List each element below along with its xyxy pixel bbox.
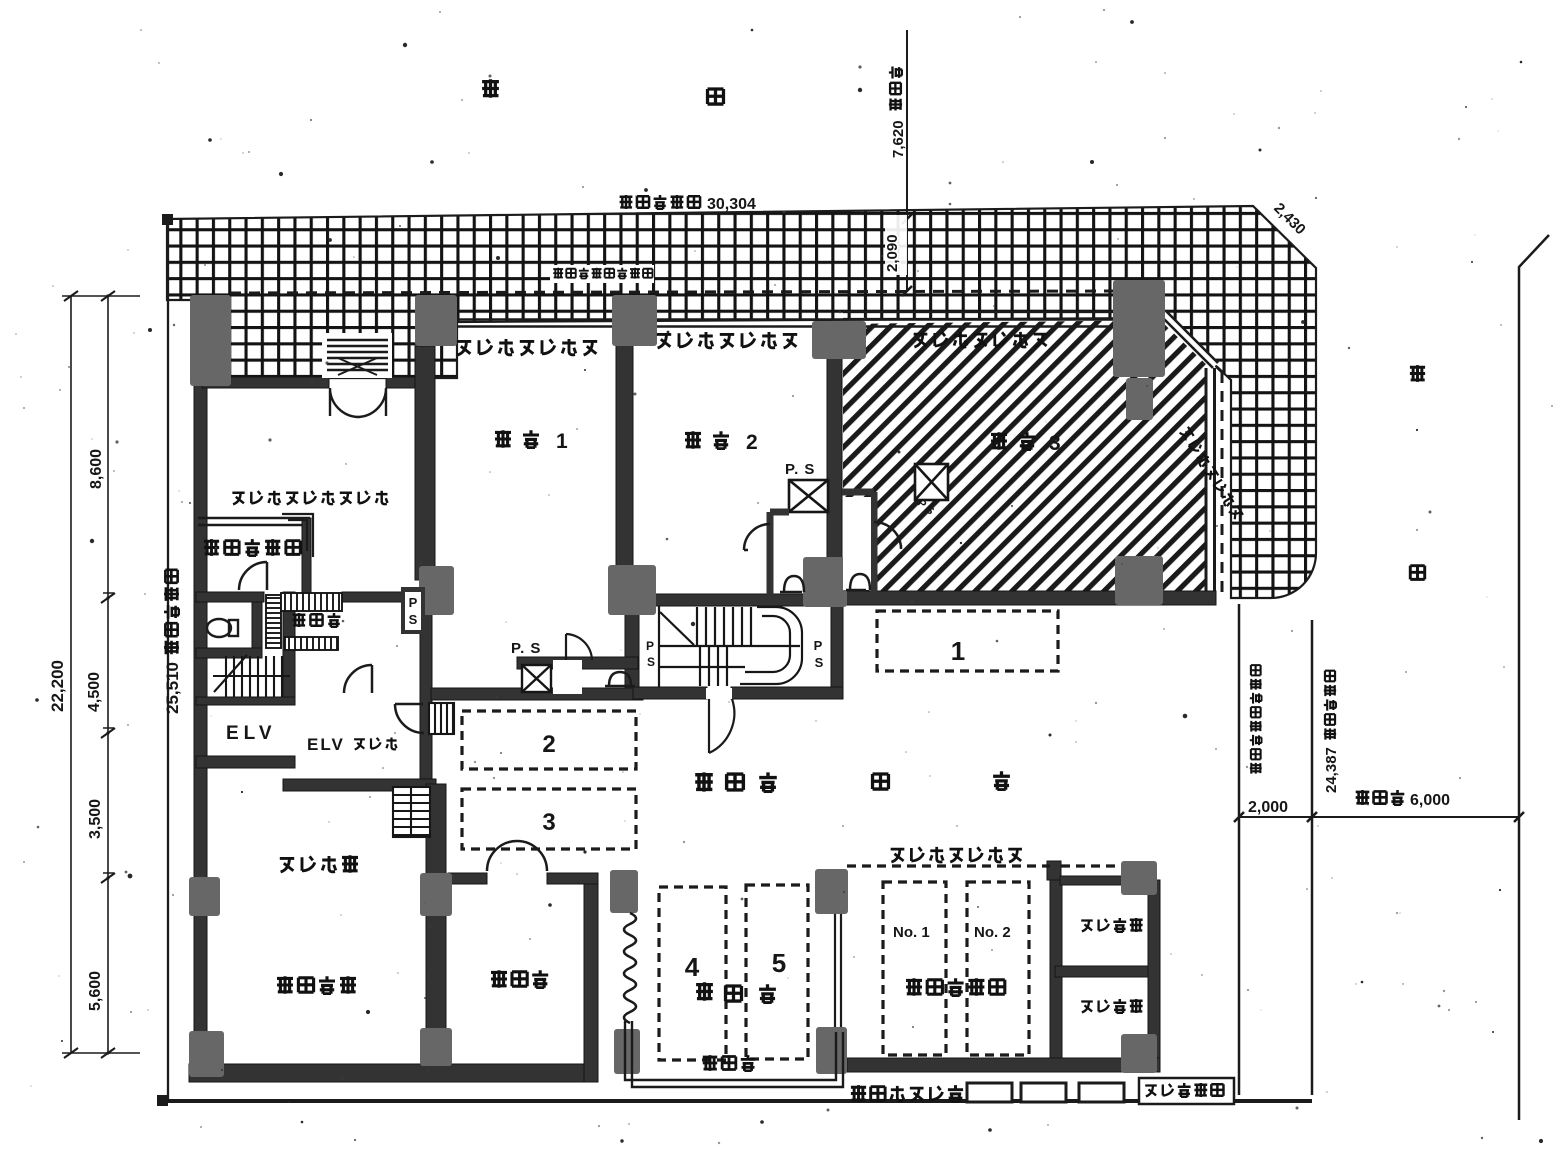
svg-text:2: 2 (746, 431, 758, 454)
svg-text:4,500: 4,500 (86, 672, 103, 712)
svg-text:No. 2: No. 2 (974, 924, 1011, 941)
svg-text:3,500: 3,500 (87, 799, 104, 839)
svg-text:30,304: 30,304 (707, 196, 756, 213)
svg-text:2,000: 2,000 (1248, 799, 1288, 816)
svg-text:3: 3 (542, 809, 555, 836)
svg-text:8,600: 8,600 (88, 449, 105, 489)
svg-text:P. S: P. S (511, 640, 541, 657)
svg-text:P: P (646, 639, 654, 653)
svg-text:S: S (647, 655, 655, 669)
svg-text:S: S (409, 612, 418, 627)
svg-text:25,510: 25,510 (163, 662, 182, 714)
svg-text:22,200: 22,200 (48, 660, 67, 712)
svg-text:4: 4 (685, 952, 700, 982)
svg-text:24,387: 24,387 (1323, 747, 1340, 793)
svg-text:5: 5 (772, 948, 786, 978)
svg-text:1: 1 (951, 636, 965, 666)
svg-text:1: 1 (556, 430, 568, 453)
svg-text:3: 3 (1049, 432, 1061, 455)
svg-text:P: P (814, 638, 823, 653)
svg-text:No. 1: No. 1 (893, 924, 930, 941)
svg-text:6,000: 6,000 (1410, 792, 1450, 809)
svg-text:2,090: 2,090 (884, 234, 901, 272)
svg-text:P: P (409, 595, 418, 610)
svg-text:7,620: 7,620 (890, 120, 907, 158)
svg-text:S: S (815, 655, 824, 670)
svg-text:2: 2 (542, 731, 555, 758)
svg-text:5,600: 5,600 (87, 971, 104, 1011)
svg-text:P. S: P. S (785, 461, 815, 478)
svg-text:ELV: ELV (307, 735, 345, 754)
svg-text:ELV: ELV (226, 723, 277, 744)
